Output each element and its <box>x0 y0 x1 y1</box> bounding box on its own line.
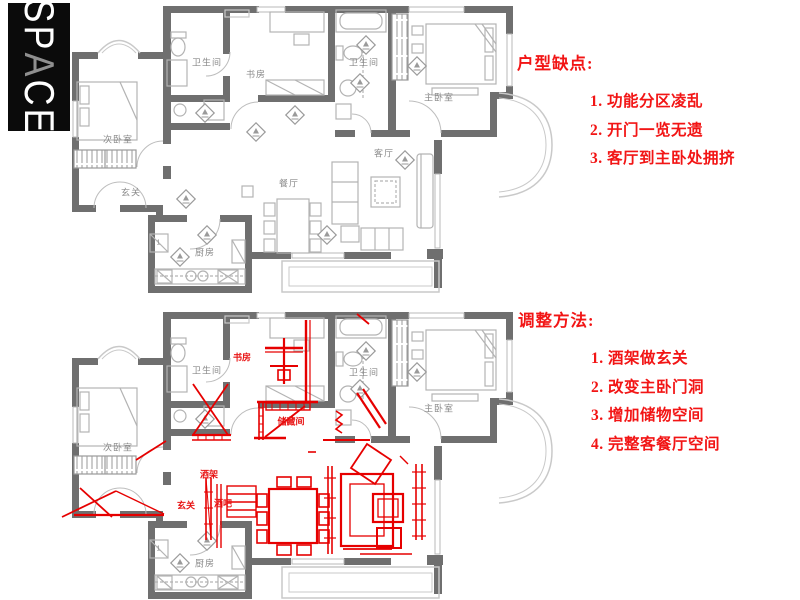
floor-plan-adjusted-drawing <box>60 308 560 600</box>
method-item: 2. 改变主卧门洞 <box>591 374 788 403</box>
method-item: 3. 增加储物空间 <box>591 402 788 431</box>
methods-panel: 调整方法: 1. 酒架做玄关2. 改变主卧门洞3. 增加储物空间4. 完整客餐厅… <box>518 310 788 459</box>
issue-item: 2. 开门一览无遗 <box>590 117 787 146</box>
issues-list: 1. 功能分区凌乱2. 开门一览无遗3. 客厅到主卧处拥挤 <box>590 88 787 174</box>
issue-item: 3. 客厅到主卧处拥挤 <box>590 145 787 174</box>
logo-letter: A <box>15 53 63 80</box>
logo-letter: S <box>15 3 63 25</box>
logo-letter: C <box>15 80 63 109</box>
issues-title: 户型缺点: <box>517 53 787 75</box>
logo-letter: P <box>15 25 63 52</box>
methods-title: 调整方法: <box>518 310 788 332</box>
method-item: 4. 完整客餐厅空间 <box>591 431 788 460</box>
issue-item: 1. 功能分区凌乱 <box>590 88 787 117</box>
floor-plan-adjusted: 卫生间卫生间主卧室次卧室厨房1书房储藏间酒架玄关酒吧 <box>60 308 560 600</box>
floor-plan-original-drawing <box>60 2 560 302</box>
logo-letter: E <box>15 109 63 131</box>
floor-plan-original: 卫生间书房卫生间主卧室次卧室玄关餐厅客厅厨房1 <box>60 2 560 302</box>
issues-panel: 户型缺点: 1. 功能分区凌乱2. 开门一览无遗3. 客厅到主卧处拥挤 <box>517 53 787 174</box>
method-item: 1. 酒架做玄关 <box>591 345 788 374</box>
methods-list: 1. 酒架做玄关2. 改变主卧门洞3. 增加储物空间4. 完整客餐厅空间 <box>591 345 788 459</box>
